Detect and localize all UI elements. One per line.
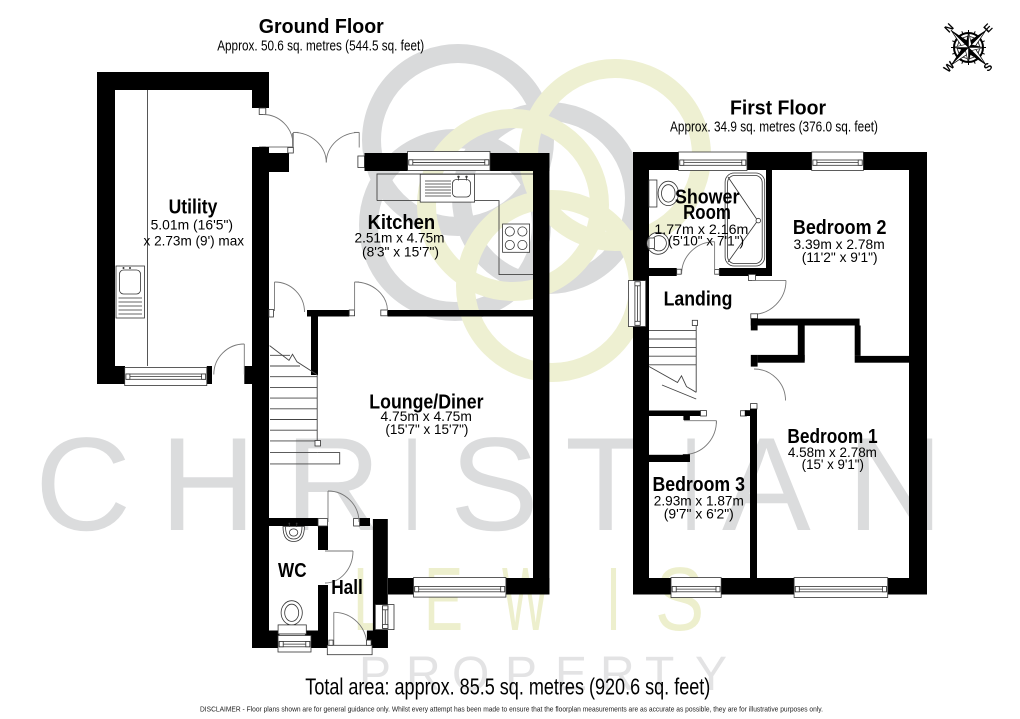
svg-text:Total area: approx. 85.5 sq. m: Total area: approx. 85.5 sq. metres (920…: [305, 674, 710, 700]
svg-text:Landing: Landing: [664, 289, 733, 311]
svg-text:Approx. 34.9 sq. metres (376.0: Approx. 34.9 sq. metres (376.0 sq. feet): [670, 120, 878, 136]
svg-text:(15' x 9'1"): (15' x 9'1"): [802, 457, 864, 472]
svg-text:Room: Room: [683, 202, 731, 224]
svg-text:First Floor: First Floor: [730, 97, 826, 120]
svg-text:S: S: [655, 550, 704, 650]
svg-text:(15'7" x 15'7"): (15'7" x 15'7"): [385, 422, 468, 437]
svg-text:WC: WC: [278, 560, 307, 582]
svg-text:H: H: [160, 411, 256, 559]
svg-text:(8'3" x 15'7"): (8'3" x 15'7"): [362, 245, 439, 260]
svg-text:Ground Floor: Ground Floor: [259, 15, 384, 38]
svg-text:DISCLAIMER - Floor plans show: DISCLAIMER - Floor plans shown are for g…: [200, 705, 823, 714]
svg-text:Approx. 50.6 sq. metres (544.5: Approx. 50.6 sq. metres (544.5 sq. feet): [217, 38, 424, 54]
svg-text:Bedroom 2: Bedroom 2: [793, 217, 887, 239]
svg-text:x 2.73m (9') max: x 2.73m (9') max: [144, 234, 245, 249]
svg-text:I: I: [606, 549, 621, 650]
svg-text:Hall: Hall: [331, 577, 363, 599]
svg-text:(9'7" x 6'2"): (9'7" x 6'2"): [664, 507, 734, 522]
svg-text:2.51m x 4.75m: 2.51m x 4.75m: [355, 231, 445, 246]
svg-text:Utility: Utility: [169, 197, 218, 219]
svg-text:C: C: [35, 411, 131, 559]
svg-text:E: E: [424, 549, 463, 650]
svg-text:(5'10" x 7'1"): (5'10" x 7'1"): [668, 234, 744, 249]
svg-text:5.01m (16'5"): 5.01m (16'5"): [151, 218, 233, 233]
svg-text:(11'2" x 9'1"): (11'2" x 9'1"): [802, 250, 878, 265]
